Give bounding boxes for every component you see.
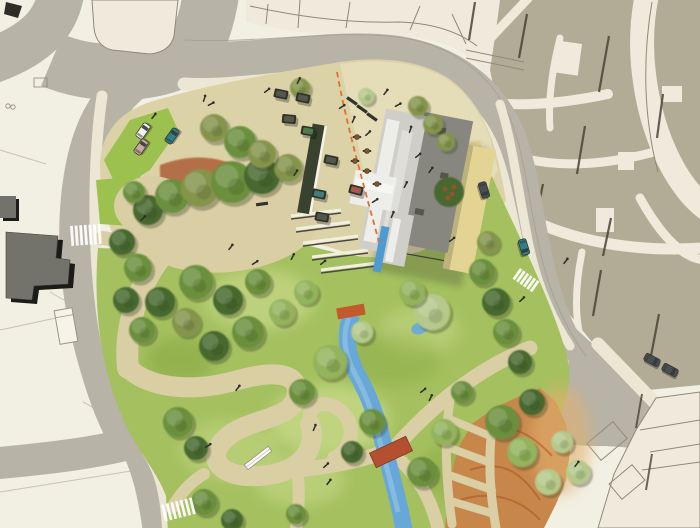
existing-building	[0, 196, 16, 218]
courtyard-tree-canopy	[434, 177, 464, 207]
peninsula-block	[92, 0, 178, 54]
courtyard-void	[662, 86, 682, 102]
courtyard-tree	[434, 177, 464, 207]
blossom	[443, 187, 446, 190]
blossom	[450, 192, 453, 195]
masterplan-svg	[0, 0, 700, 528]
courtyard-void	[618, 152, 634, 170]
road-southwest-branch	[0, 442, 136, 464]
blossom	[446, 196, 449, 199]
site-plan-rendering	[0, 0, 700, 528]
courtyard-void	[552, 40, 582, 75]
blossom	[452, 185, 455, 188]
